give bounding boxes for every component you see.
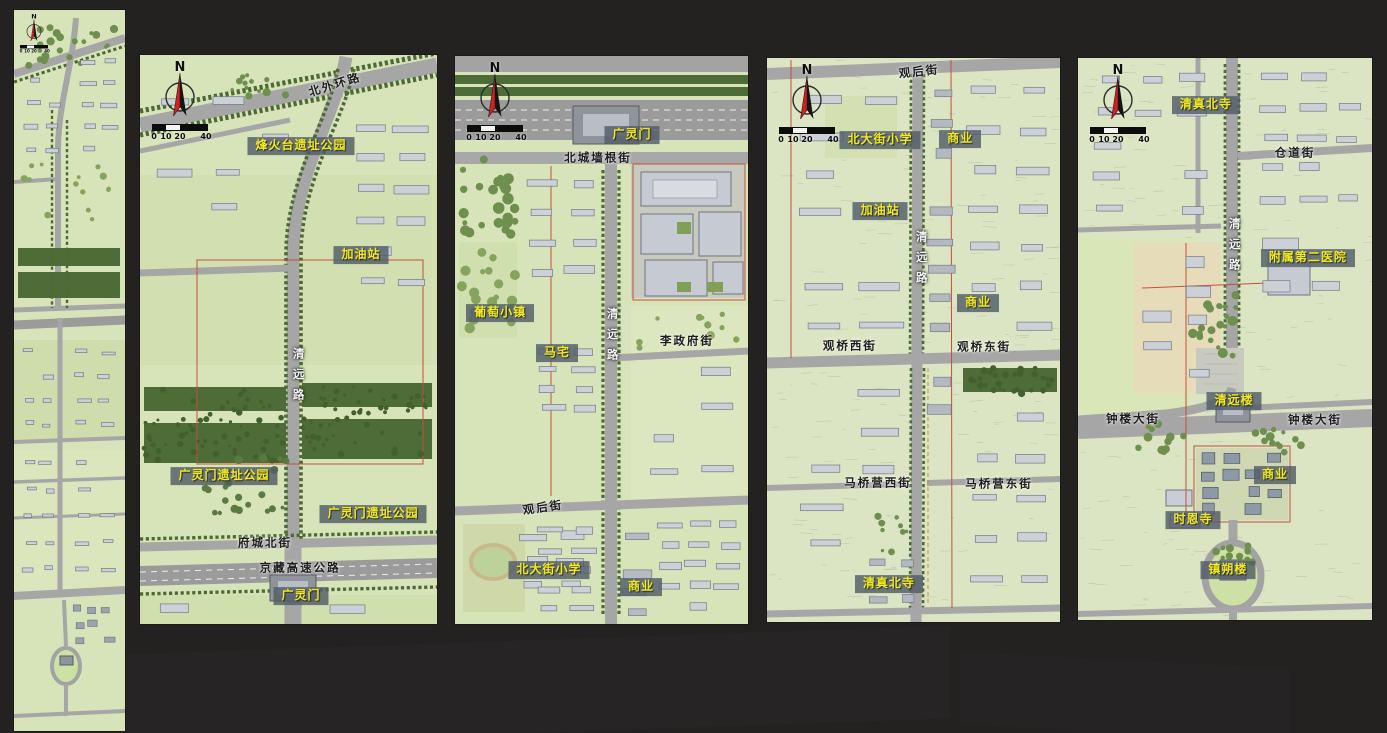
place-label: 商业 xyxy=(620,578,662,596)
street-label: 观后街 xyxy=(898,63,940,80)
place-label: 清远楼 xyxy=(1207,392,1262,410)
street-label: 京藏高速公路 xyxy=(260,562,341,575)
street-label: 清远路 xyxy=(1228,217,1241,279)
map-panel-4: N0102040 清真北寺仓道街清远路附属第二医院清远楼钟楼大街钟楼大街商业时恩… xyxy=(1078,58,1372,620)
place-label: 时恩寺 xyxy=(1165,511,1220,529)
street-label: 府城北街 xyxy=(238,537,292,550)
street-label: 观后街 xyxy=(522,499,564,518)
place-label: 清真北寺 xyxy=(855,575,923,593)
street-label: 马桥营东街 xyxy=(965,477,1033,490)
map-panel-1: N0102040 北外环路烽火台遗址公园加油站清远路广灵门遗址公园广灵门遗址公园… xyxy=(140,55,437,624)
place-label: 马宅 xyxy=(536,344,578,362)
place-label: 加油站 xyxy=(853,202,908,220)
street-label: 清远路 xyxy=(291,347,304,409)
street-label: 钟楼大街 xyxy=(1106,412,1160,425)
backdrop-silhouette xyxy=(960,651,1290,733)
place-label: 商业 xyxy=(939,130,981,148)
map-panel-3: N0102040 观后街北大街小学商业加油站清远路商业观桥西街观桥东街马桥营西街… xyxy=(767,58,1060,622)
street-label: 马桥营西街 xyxy=(844,477,912,490)
map-panel-overview: N0102040 xyxy=(14,10,125,731)
place-label: 北大街小学 xyxy=(840,131,921,149)
place-label: 镇朔楼 xyxy=(1200,561,1255,579)
place-label: 广灵门遗址公园 xyxy=(320,505,427,523)
street-label: 钟楼大街 xyxy=(1288,413,1342,426)
street-label: 仓道街 xyxy=(1275,146,1316,159)
street-label: 北外环路 xyxy=(307,71,363,99)
place-label: 清真北寺 xyxy=(1172,96,1240,114)
place-label: 广灵门遗址公园 xyxy=(171,467,278,485)
street-label: 观桥东街 xyxy=(957,340,1011,353)
map-panel-2: N0102040 广灵门北城墙根街葡萄小镇马宅清远路李政府街观后街北大街小学商业 xyxy=(455,56,748,624)
backdrop-silhouette xyxy=(120,626,950,733)
street-label: 观桥西街 xyxy=(823,340,877,353)
place-label: 广灵门 xyxy=(273,587,328,605)
street-label: 北城墙根街 xyxy=(564,152,632,165)
place-label: 广灵门 xyxy=(604,126,659,144)
place-label: 加油站 xyxy=(333,246,388,264)
place-label: 附属第二医院 xyxy=(1261,249,1355,267)
map-board: { "shared": { "compass_letter": "N", "sc… xyxy=(0,0,1387,733)
place-label: 北大街小学 xyxy=(509,561,590,579)
street-label: 清远路 xyxy=(605,307,618,369)
street-label: 清远路 xyxy=(915,230,928,292)
street-label: 李政府街 xyxy=(660,335,714,348)
place-label: 葡萄小镇 xyxy=(466,304,534,322)
place-label: 商业 xyxy=(1254,466,1296,484)
place-label: 烽火台遗址公园 xyxy=(247,137,354,155)
place-label: 商业 xyxy=(957,294,999,312)
